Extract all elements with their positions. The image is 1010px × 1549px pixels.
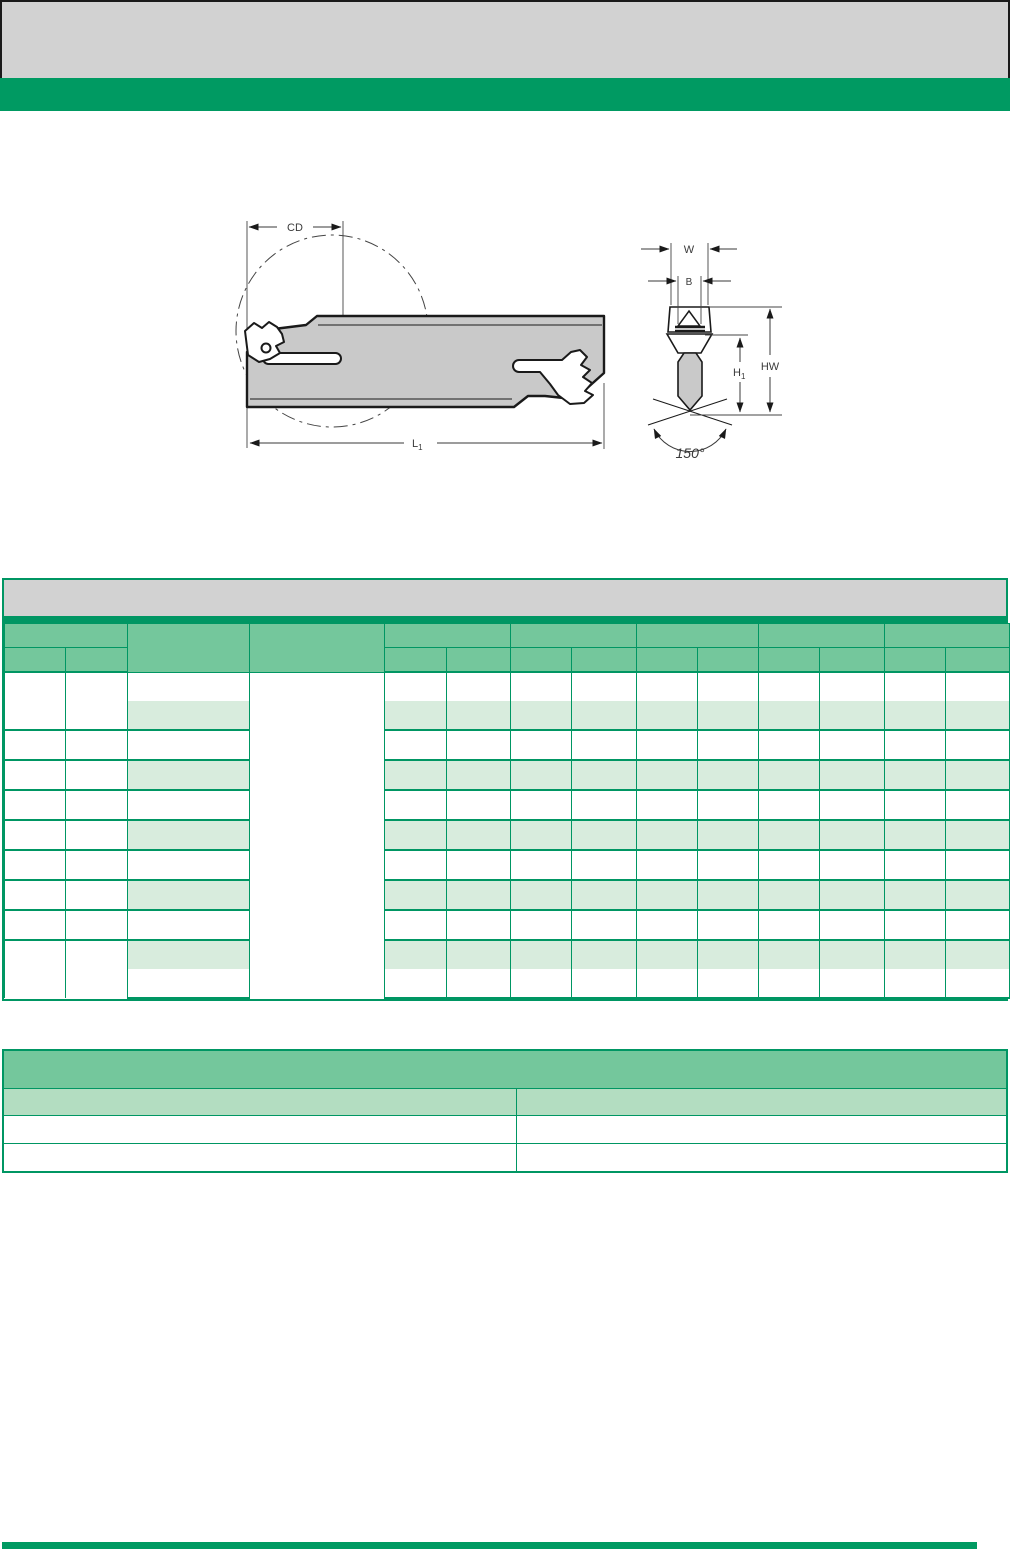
secondary-table-title-band (4, 1051, 1006, 1089)
table-cell (4, 1144, 516, 1172)
table-cell (511, 701, 572, 730)
table-cell (820, 820, 885, 850)
column-header-cell (698, 648, 759, 673)
table-cell (946, 672, 1010, 701)
table-cell (511, 790, 572, 820)
table-cell (820, 910, 885, 940)
table-cell (698, 880, 759, 910)
table-cell (385, 790, 447, 820)
table-cell (447, 850, 511, 880)
table-cell (447, 910, 511, 940)
dim-angle-label: 150° (676, 445, 705, 461)
table-cell (759, 940, 820, 969)
table-row (4, 1144, 1006, 1172)
table-cell (885, 760, 946, 790)
table-cell (885, 820, 946, 850)
table-cell (128, 940, 250, 969)
blade-section-body (678, 353, 702, 410)
table-cell (885, 910, 946, 940)
table-cell (820, 790, 885, 820)
table-cell (5, 850, 66, 880)
table-cell (946, 760, 1010, 790)
blade-neck-outline (667, 334, 712, 353)
table-cell (511, 730, 572, 760)
table-cell (759, 730, 820, 760)
table-cell (572, 969, 637, 998)
column-header-cell (885, 624, 1010, 648)
table-cell (511, 850, 572, 880)
table-cell (572, 672, 637, 701)
column-header-cell (572, 648, 637, 673)
table-cell (572, 790, 637, 820)
table-cell (128, 880, 250, 910)
column-header-cell (5, 648, 66, 673)
table-row (5, 701, 1010, 730)
table-cell (128, 672, 250, 701)
table-row (5, 910, 1010, 940)
column-header-cell (637, 624, 759, 648)
table-cell (385, 940, 447, 969)
table-cell (698, 730, 759, 760)
dim-l1: L1 (250, 438, 602, 452)
table-cell (385, 701, 447, 730)
table-cell (4, 1116, 516, 1144)
table-row (5, 880, 1010, 910)
table-cell (759, 969, 820, 998)
table-cell (637, 910, 698, 940)
table-cell (820, 850, 885, 880)
column-header-cell (759, 624, 885, 648)
table-cell (637, 820, 698, 850)
table-cell (511, 910, 572, 940)
table-cell (511, 969, 572, 998)
table-cell (946, 940, 1010, 969)
main-table-green-stripe (4, 616, 1006, 623)
table-cell (128, 820, 250, 850)
table-cell (511, 672, 572, 701)
column-header-cell (385, 624, 511, 648)
table-cell (66, 850, 128, 880)
table-cell (447, 672, 511, 701)
table-cell (5, 910, 66, 940)
table-cell (946, 880, 1010, 910)
table-cell (698, 760, 759, 790)
table-cell (885, 940, 946, 969)
table-cell (511, 940, 572, 969)
table-cell (946, 850, 1010, 880)
table-cell (5, 730, 66, 760)
header-row-1 (5, 624, 1010, 648)
table-row (5, 820, 1010, 850)
table-cell (698, 790, 759, 820)
table-cell (66, 820, 128, 850)
table-cell (516, 1144, 1006, 1172)
insert-screw-hole (262, 344, 271, 353)
top-green-stripe (0, 78, 1010, 111)
table-cell (128, 790, 250, 820)
column-header-cell (511, 624, 637, 648)
dim-cd: CD (249, 222, 341, 234)
table-cell (637, 790, 698, 820)
table-row (5, 672, 1010, 701)
table-cell (759, 910, 820, 940)
table-cell (385, 880, 447, 910)
table-cell (820, 730, 885, 760)
table-cell (128, 850, 250, 880)
table-cell (447, 701, 511, 730)
dim-angle: 150° (654, 429, 726, 461)
table-cell (5, 790, 66, 820)
column-header-cell (820, 648, 885, 673)
main-table (2, 578, 1008, 1001)
column-header-cell (637, 648, 698, 673)
table-cell (820, 940, 885, 969)
table-cell (759, 850, 820, 880)
table-cell (385, 820, 447, 850)
table-cell (637, 760, 698, 790)
table-cell (572, 850, 637, 880)
table-cell (885, 672, 946, 701)
table-cell (820, 672, 885, 701)
dim-w: W (641, 243, 737, 305)
table-cell (128, 969, 250, 998)
table-cell (946, 820, 1010, 850)
table-cell (885, 850, 946, 880)
table-cell (447, 880, 511, 910)
table-cell (820, 880, 885, 910)
table-cell (66, 940, 128, 998)
table-cell (759, 820, 820, 850)
technical-drawing: CD L1 150° (215, 190, 815, 490)
table-cell (820, 969, 885, 998)
table-row (5, 730, 1010, 760)
table-cell (698, 850, 759, 880)
dim-hw-label: HW (761, 361, 780, 373)
table-cell (698, 940, 759, 969)
table-cell (637, 880, 698, 910)
table-cell (885, 701, 946, 730)
table-cell (572, 820, 637, 850)
table-cell (385, 730, 447, 760)
column-header-cell (66, 648, 128, 673)
table-cell (637, 940, 698, 969)
table-cell (128, 730, 250, 760)
table-cell (885, 730, 946, 760)
table-row (5, 790, 1010, 820)
table-cell (5, 672, 66, 730)
table-cell (511, 760, 572, 790)
table-cell (66, 760, 128, 790)
table-row (5, 940, 1010, 969)
table-cell (698, 969, 759, 998)
secondary-header-row (4, 1089, 1006, 1116)
table-cell (637, 850, 698, 880)
column-header-cell (4, 1089, 516, 1116)
table-cell (946, 730, 1010, 760)
side-view-diagram: CD L1 (236, 221, 604, 452)
table-cell (572, 760, 637, 790)
table-cell (128, 701, 250, 730)
column-header-cell (447, 648, 511, 673)
column-header-cell (516, 1089, 1006, 1116)
footer-green-bar (2, 1542, 977, 1549)
table-cell (447, 969, 511, 998)
column-header-cell (885, 648, 946, 673)
table-cell (511, 880, 572, 910)
table-cell (885, 969, 946, 998)
column-header-cell (759, 648, 820, 673)
table-cell (385, 969, 447, 998)
table-cell (759, 760, 820, 790)
catalog-page: CD L1 150° (0, 0, 1010, 1549)
column-header-cell (250, 624, 385, 673)
table-cell (946, 701, 1010, 730)
table-cell (946, 790, 1010, 820)
dim-cd-label: CD (287, 222, 303, 234)
column-header-cell (511, 648, 572, 673)
table-cell (447, 790, 511, 820)
table-cell (572, 880, 637, 910)
column-header-cell (128, 624, 250, 673)
table-cell (759, 672, 820, 701)
column-header-cell (946, 648, 1010, 673)
table-cell (637, 730, 698, 760)
table-cell (637, 672, 698, 701)
table-cell (946, 910, 1010, 940)
table-cell (759, 880, 820, 910)
table-cell (128, 910, 250, 940)
table-cell (66, 910, 128, 940)
table-cell (5, 940, 66, 998)
table-row (4, 1116, 1006, 1144)
table-cell (385, 672, 447, 701)
table-cell (66, 790, 128, 820)
table-cell (5, 880, 66, 910)
table-cell (759, 790, 820, 820)
secondary-table (2, 1049, 1008, 1173)
table-cell (698, 820, 759, 850)
table-cell (572, 940, 637, 969)
main-table-title-band (4, 580, 1006, 616)
table-cell (385, 910, 447, 940)
table-cell (447, 730, 511, 760)
table-cell (511, 820, 572, 850)
table-cell (5, 760, 66, 790)
table-cell (698, 701, 759, 730)
dim-h1-label: H1 (733, 367, 746, 381)
table-cell (698, 672, 759, 701)
table-cell (66, 730, 128, 760)
table-cell (572, 730, 637, 760)
table-cell (572, 910, 637, 940)
section-view-diagram: 150° W B (641, 243, 782, 461)
table-cell (5, 820, 66, 850)
table-cell (385, 760, 447, 790)
table-cell (447, 940, 511, 969)
column-header-cell (385, 648, 447, 673)
table-cell (759, 701, 820, 730)
table-cell (637, 969, 698, 998)
table-cell (250, 672, 385, 998)
table-cell (698, 910, 759, 940)
dim-hw: HW (710, 307, 782, 412)
table-cell (66, 672, 128, 730)
table-cell (447, 760, 511, 790)
table-cell (447, 820, 511, 850)
column-header-cell (5, 624, 128, 648)
dim-w-label: W (684, 244, 695, 256)
table-cell (516, 1116, 1006, 1144)
table-cell (820, 701, 885, 730)
table-cell (946, 969, 1010, 998)
table-row (5, 760, 1010, 790)
table-cell (66, 880, 128, 910)
table-cell (385, 850, 447, 880)
table-cell (572, 701, 637, 730)
table-row (5, 850, 1010, 880)
table-cell (820, 760, 885, 790)
table-cell (637, 701, 698, 730)
table-row (5, 969, 1010, 998)
dim-b-label: B (686, 277, 693, 288)
table-cell (128, 760, 250, 790)
table-cell (885, 880, 946, 910)
table-cell (885, 790, 946, 820)
dim-l1-label: L1 (412, 438, 423, 452)
top-gray-title-band (0, 0, 1010, 78)
